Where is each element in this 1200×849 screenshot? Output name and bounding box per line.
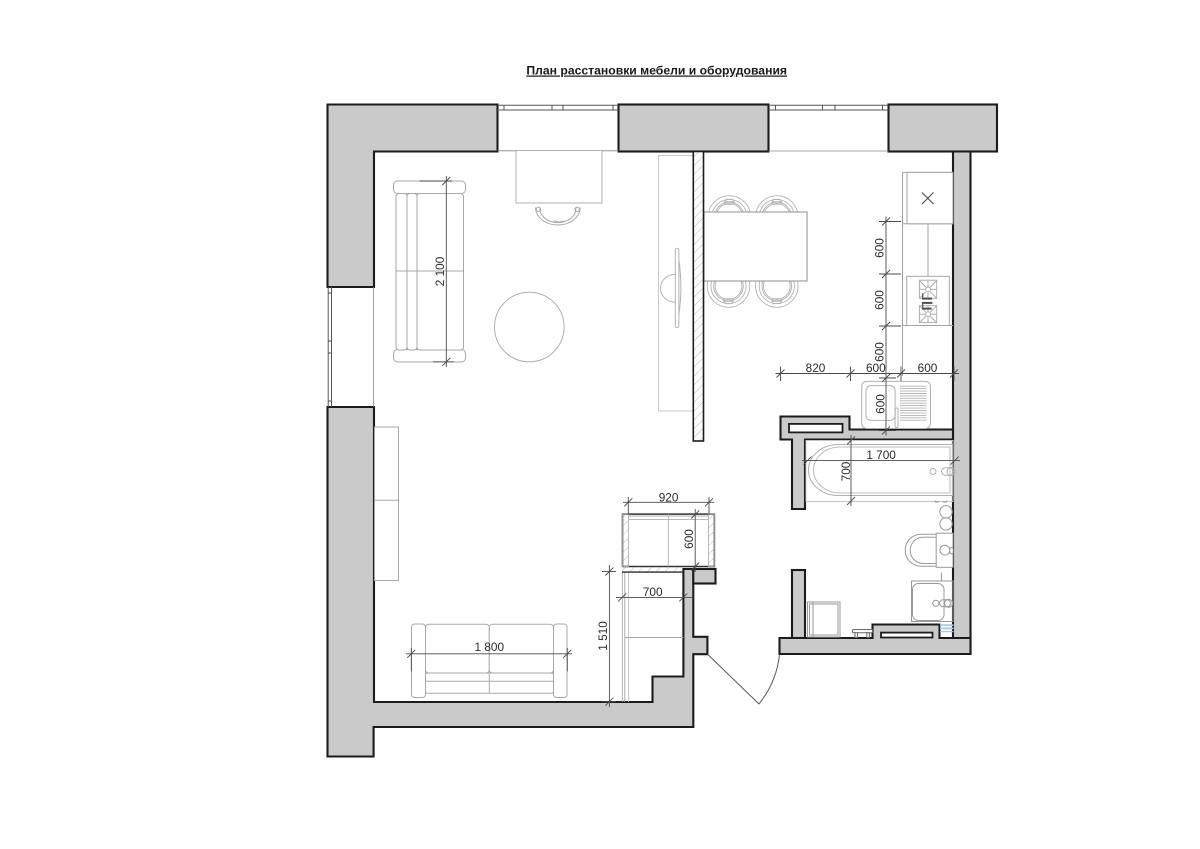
svg-text:600: 600 bbox=[872, 290, 886, 310]
svg-text:600: 600 bbox=[918, 361, 938, 375]
svg-text:600: 600 bbox=[866, 361, 886, 375]
svg-text:600: 600 bbox=[872, 342, 886, 362]
svg-text:1 800: 1 800 bbox=[475, 640, 505, 654]
svg-text:600: 600 bbox=[872, 238, 886, 258]
svg-text:600: 600 bbox=[682, 529, 696, 549]
svg-text:План расстановки мебели и обор: План расстановки мебели и оборудования bbox=[526, 64, 787, 78]
svg-text:920: 920 bbox=[659, 491, 679, 505]
svg-text:1 510: 1 510 bbox=[596, 621, 610, 651]
svg-text:820: 820 bbox=[806, 361, 826, 375]
svg-text:2 100: 2 100 bbox=[433, 256, 447, 286]
svg-text:700: 700 bbox=[643, 585, 663, 599]
svg-text:600: 600 bbox=[874, 394, 888, 414]
svg-text:1 700: 1 700 bbox=[866, 448, 896, 462]
svg-text:700: 700 bbox=[839, 461, 853, 481]
